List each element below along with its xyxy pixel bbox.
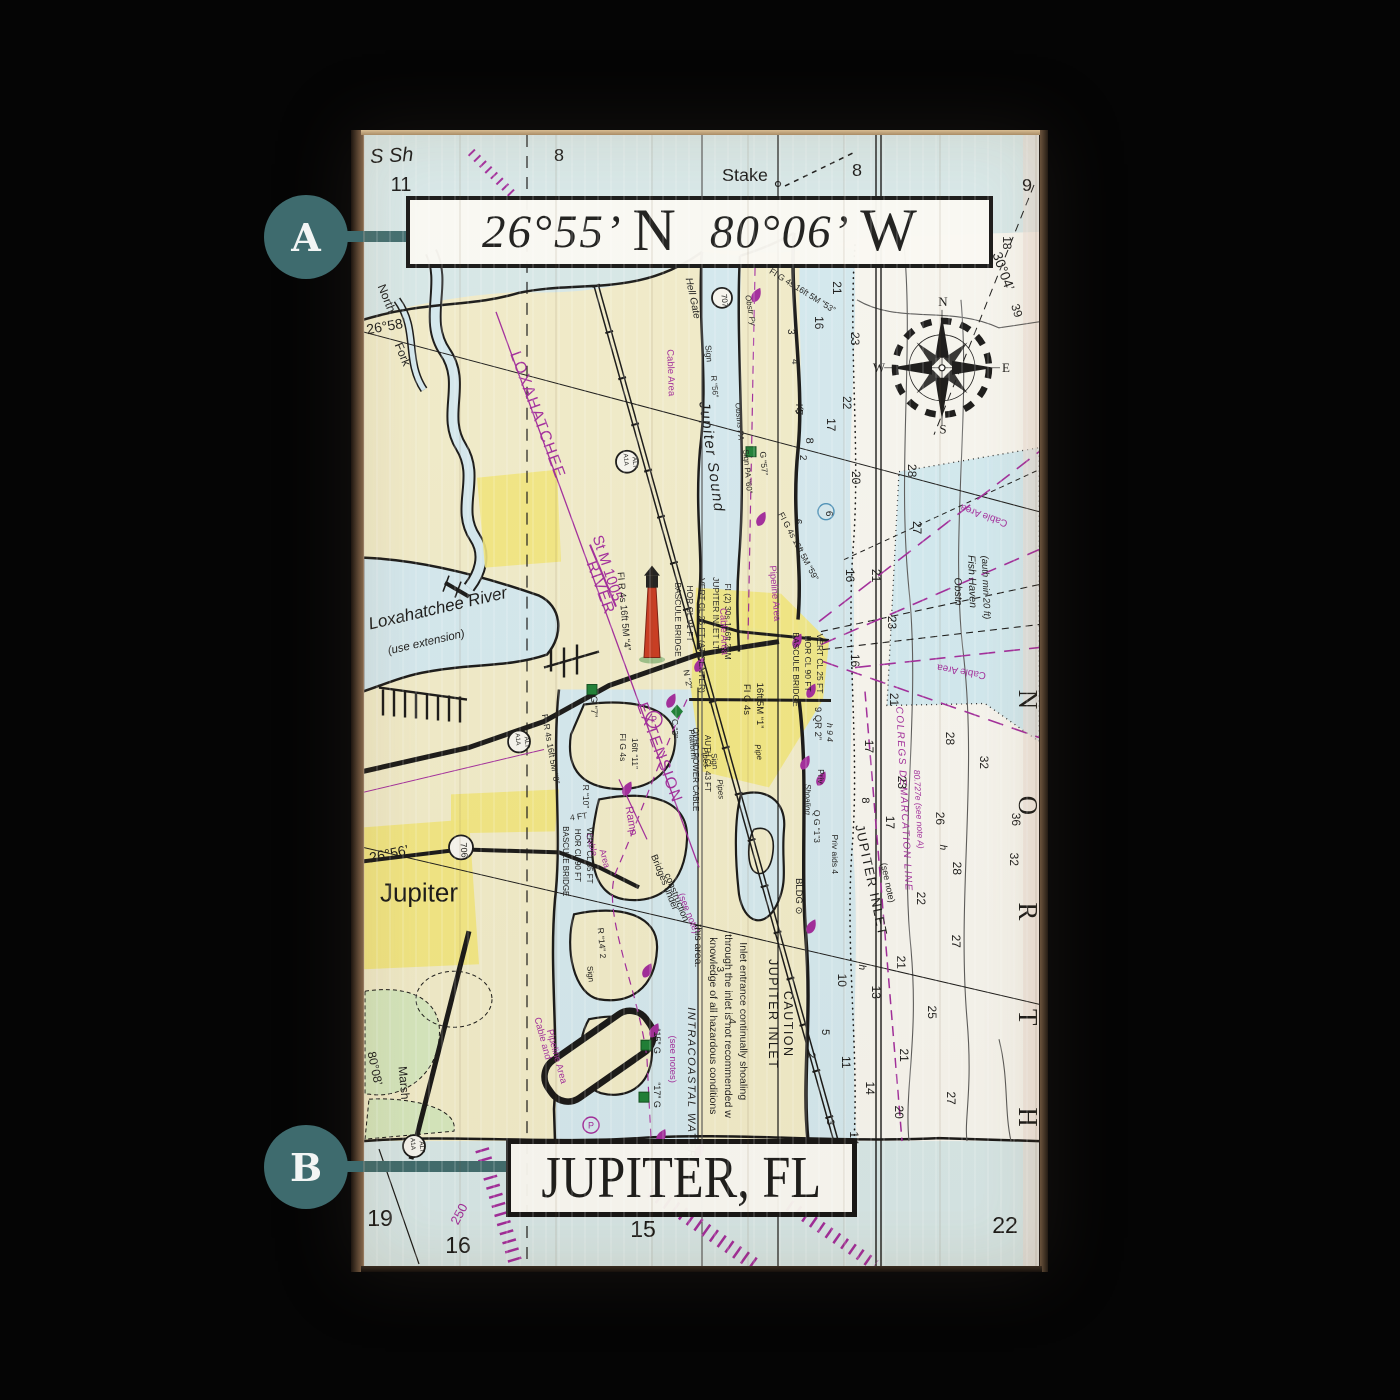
chart-label: ALT xyxy=(523,736,531,748)
chart-label: Obstn xyxy=(952,577,964,605)
chart-label: 23 xyxy=(895,776,909,790)
chart-label: Priv xyxy=(816,769,826,784)
page: { "scene": {"background": "#050505"}, "c… xyxy=(0,0,1400,1400)
chart-label: 5 xyxy=(793,409,804,415)
city-name: JUPITER, FL xyxy=(542,1144,822,1211)
chart-label: S Sh xyxy=(369,144,413,168)
chart-label: N xyxy=(938,294,948,309)
nautical-chart-svg: PP S Sh118Stake891830°04’3926°58’NorthFo… xyxy=(363,135,1039,1266)
chart-label: 10 xyxy=(835,974,849,988)
chart-label: 3 xyxy=(824,1119,836,1125)
chart-label: R xyxy=(1013,902,1039,920)
chart-label: AUTH CL 43 FT xyxy=(703,735,712,792)
chart-label: 20 xyxy=(892,1105,906,1119)
chart-label: JUPITER INLET xyxy=(766,959,780,1069)
latitude-value: 26°55’ xyxy=(482,205,622,259)
callout-b-connector xyxy=(344,1161,510,1172)
chart-label: Sign xyxy=(585,966,595,983)
chart-label: 8 xyxy=(803,438,815,444)
chart-label: Marsh xyxy=(396,1066,413,1100)
wood-edge-top xyxy=(361,130,1042,135)
callout-b-label: B xyxy=(290,1145,322,1190)
chart-label: 6 xyxy=(792,519,803,525)
chart-label: through the inlet is not recommended w xyxy=(722,934,733,1118)
chart-label: “15” G xyxy=(652,1028,662,1053)
chart-label: 15 xyxy=(630,1216,656,1242)
chart-label: 25 xyxy=(925,1006,939,1020)
wood-edge-right xyxy=(1040,130,1048,1272)
chart-label: 19 xyxy=(367,1205,393,1231)
chart-label: 28 xyxy=(905,464,919,478)
chart-label: ALT xyxy=(631,457,639,469)
chart-label: 23 xyxy=(848,332,862,346)
chart-label: 27 xyxy=(910,521,924,535)
chart-label: 6 xyxy=(823,511,834,517)
chart-label: (see notes) xyxy=(667,1035,678,1082)
chart-label: 9 QR 2” xyxy=(812,707,823,740)
chart-label: 13 xyxy=(869,986,883,1000)
city-banner[interactable]: JUPITER, FL xyxy=(506,1139,857,1217)
chart-label: VERT CL 25 FT xyxy=(815,634,825,694)
longitude-hemisphere: W xyxy=(860,196,917,265)
chart-label: A1A xyxy=(408,1138,416,1151)
chart-label: 16 xyxy=(843,569,857,583)
green-daymark-icon xyxy=(641,1040,651,1050)
green-daymark-icon xyxy=(587,685,597,695)
chart-label: 21 xyxy=(869,569,883,583)
chart-label: 706 xyxy=(458,842,469,858)
chart-label: Jupiter xyxy=(380,877,458,907)
chart-label: Stake xyxy=(722,165,768,185)
chart-label: S xyxy=(939,422,946,437)
chart-label: BASCULE BRIDGE xyxy=(673,582,683,657)
chart-label: 21 xyxy=(887,693,901,707)
chart-label: W xyxy=(873,360,886,375)
chart-label: 22 xyxy=(914,892,928,906)
chart-label: C “3” xyxy=(670,719,680,738)
chart-label: H xyxy=(1013,1107,1039,1126)
chart-label: Cable Area xyxy=(717,608,730,656)
chart-label: 21 xyxy=(830,281,844,295)
chart-label: 3 xyxy=(785,329,796,335)
green-daymark-icon xyxy=(639,1092,649,1102)
chart-label: R “10” xyxy=(581,785,591,809)
chart-label: Pipes xyxy=(715,779,726,800)
chart-label: 28 xyxy=(943,732,957,746)
chart-label: BASCULE BRIDGE xyxy=(561,826,570,896)
product-mockup-stage: PP S Sh118Stake891830°04’3926°58’NorthFo… xyxy=(0,0,1400,1400)
chart-label: HOR CL 91 FT xyxy=(685,585,695,641)
chart-label: 21 xyxy=(894,956,908,970)
chart-label: 17 xyxy=(824,418,838,432)
chart-label: h 9 4 xyxy=(825,723,835,742)
chart-label: N xyxy=(1013,690,1039,709)
chart-label: BASCULE BRIDGE xyxy=(791,632,801,707)
chart-label: Sign xyxy=(703,345,714,363)
chart-label: 16 xyxy=(445,1232,471,1258)
chart-label: BLDG ⊙ xyxy=(793,878,804,914)
chart-label: 8 xyxy=(554,145,564,165)
latitude-hemisphere: N xyxy=(633,196,676,265)
nautical-chart: PP S Sh118Stake891830°04’3926°58’NorthFo… xyxy=(363,135,1039,1266)
chart-label: this area. xyxy=(692,924,703,967)
chart-label: Inlet entrance continually shoaling xyxy=(737,942,748,1100)
chart-label: 22 xyxy=(992,1212,1018,1238)
chart-label: HOR CL 90 FT xyxy=(573,829,582,882)
chart-label: 18 xyxy=(1000,236,1014,250)
callout-a-badge[interactable]: A xyxy=(264,195,348,279)
callout-a-label: A xyxy=(291,215,320,260)
chart-label: 5 xyxy=(819,1029,831,1035)
chart-label: A1A xyxy=(513,733,521,746)
coordinates-banner[interactable]: 26°55’ N 80°06’ W xyxy=(406,196,993,268)
chart-label: 17 xyxy=(883,816,897,830)
chart-label: OVHD POWER CABLE xyxy=(691,728,700,812)
chart-label: CAUTION xyxy=(781,991,795,1058)
wood-edge-bottom xyxy=(361,1266,1042,1272)
chart-label: VERT CL 26 FT (AT CENTER) xyxy=(697,578,707,693)
chart-label: h xyxy=(856,964,867,970)
chart-label: Priv aids 4 xyxy=(830,835,840,875)
chart-label: 21 xyxy=(897,1049,911,1063)
chart-label: ALT xyxy=(418,1141,426,1153)
chart-label: 27 xyxy=(949,935,963,949)
chart-label: 8 xyxy=(859,797,871,803)
chart-label: 14 xyxy=(863,1081,877,1095)
chart-label: 20 xyxy=(849,471,863,485)
chart-label: 11 xyxy=(391,174,412,196)
chart-label: 707 xyxy=(719,294,729,309)
chart-label: VERT CL 35 FT xyxy=(585,827,594,883)
chart-label: Q G “1”3 xyxy=(812,810,822,843)
chart-label: 16 xyxy=(848,654,862,668)
chart-label: 16 xyxy=(812,316,826,330)
wood-edge-left xyxy=(351,130,364,1272)
chart-label: Fish Haven xyxy=(965,555,978,609)
chart-label: Shoaling xyxy=(803,784,812,816)
chart-label: 16ft 5M “1” xyxy=(754,683,765,729)
chart-label: 32 xyxy=(977,756,991,770)
chart-label: 32 xyxy=(1007,853,1021,867)
chart-label: 2 xyxy=(805,1052,817,1058)
chart-label: 9 xyxy=(1022,175,1032,195)
chart-label: Cable Area xyxy=(664,349,677,397)
chart-label: 22 xyxy=(840,396,854,410)
chart-label: h xyxy=(937,845,948,851)
chart-label: HOR CL 90 FT xyxy=(803,635,813,691)
chart-label: 2 xyxy=(797,455,808,461)
chart-label: 26 xyxy=(933,812,947,826)
pump-out-symbol-letter: P xyxy=(588,1120,594,1130)
chart-label: “17” G xyxy=(652,1082,662,1107)
chart-label: 23 xyxy=(885,616,899,630)
chart-label: A1A xyxy=(621,453,629,466)
longitude-value: 80°06’ xyxy=(710,205,850,259)
callout-a-connector xyxy=(344,231,410,242)
chart-label: FI G 4s xyxy=(618,734,628,762)
chart-label: 11 xyxy=(839,1056,853,1069)
chart-label: G “7” xyxy=(588,696,599,718)
chart-label: G “57” xyxy=(758,451,770,476)
callout-b-badge[interactable]: B xyxy=(264,1125,348,1209)
chart-label: FI G 4s xyxy=(741,684,752,715)
chart-label: 4 xyxy=(726,1018,737,1024)
chart-label: E xyxy=(1002,360,1010,375)
chart-sign-product: PP S Sh118Stake891830°04’3926°58’NorthFo… xyxy=(351,130,1048,1272)
chart-label: 28 xyxy=(950,862,964,876)
chart-label: O xyxy=(1013,796,1039,815)
chart-label: 16ft “11” xyxy=(630,738,640,769)
chart-label: knowledge of all hazardous conditions xyxy=(707,937,718,1114)
chart-label: 3 xyxy=(714,966,725,972)
chart-label: T xyxy=(1013,1009,1039,1026)
chart-label: (auth min 20 ft) xyxy=(979,555,992,619)
chart-label: 8 xyxy=(852,160,862,180)
chart-label: 4 xyxy=(789,359,800,365)
chart-label: 27 xyxy=(944,1091,958,1105)
chart-label: 17 xyxy=(862,740,876,754)
